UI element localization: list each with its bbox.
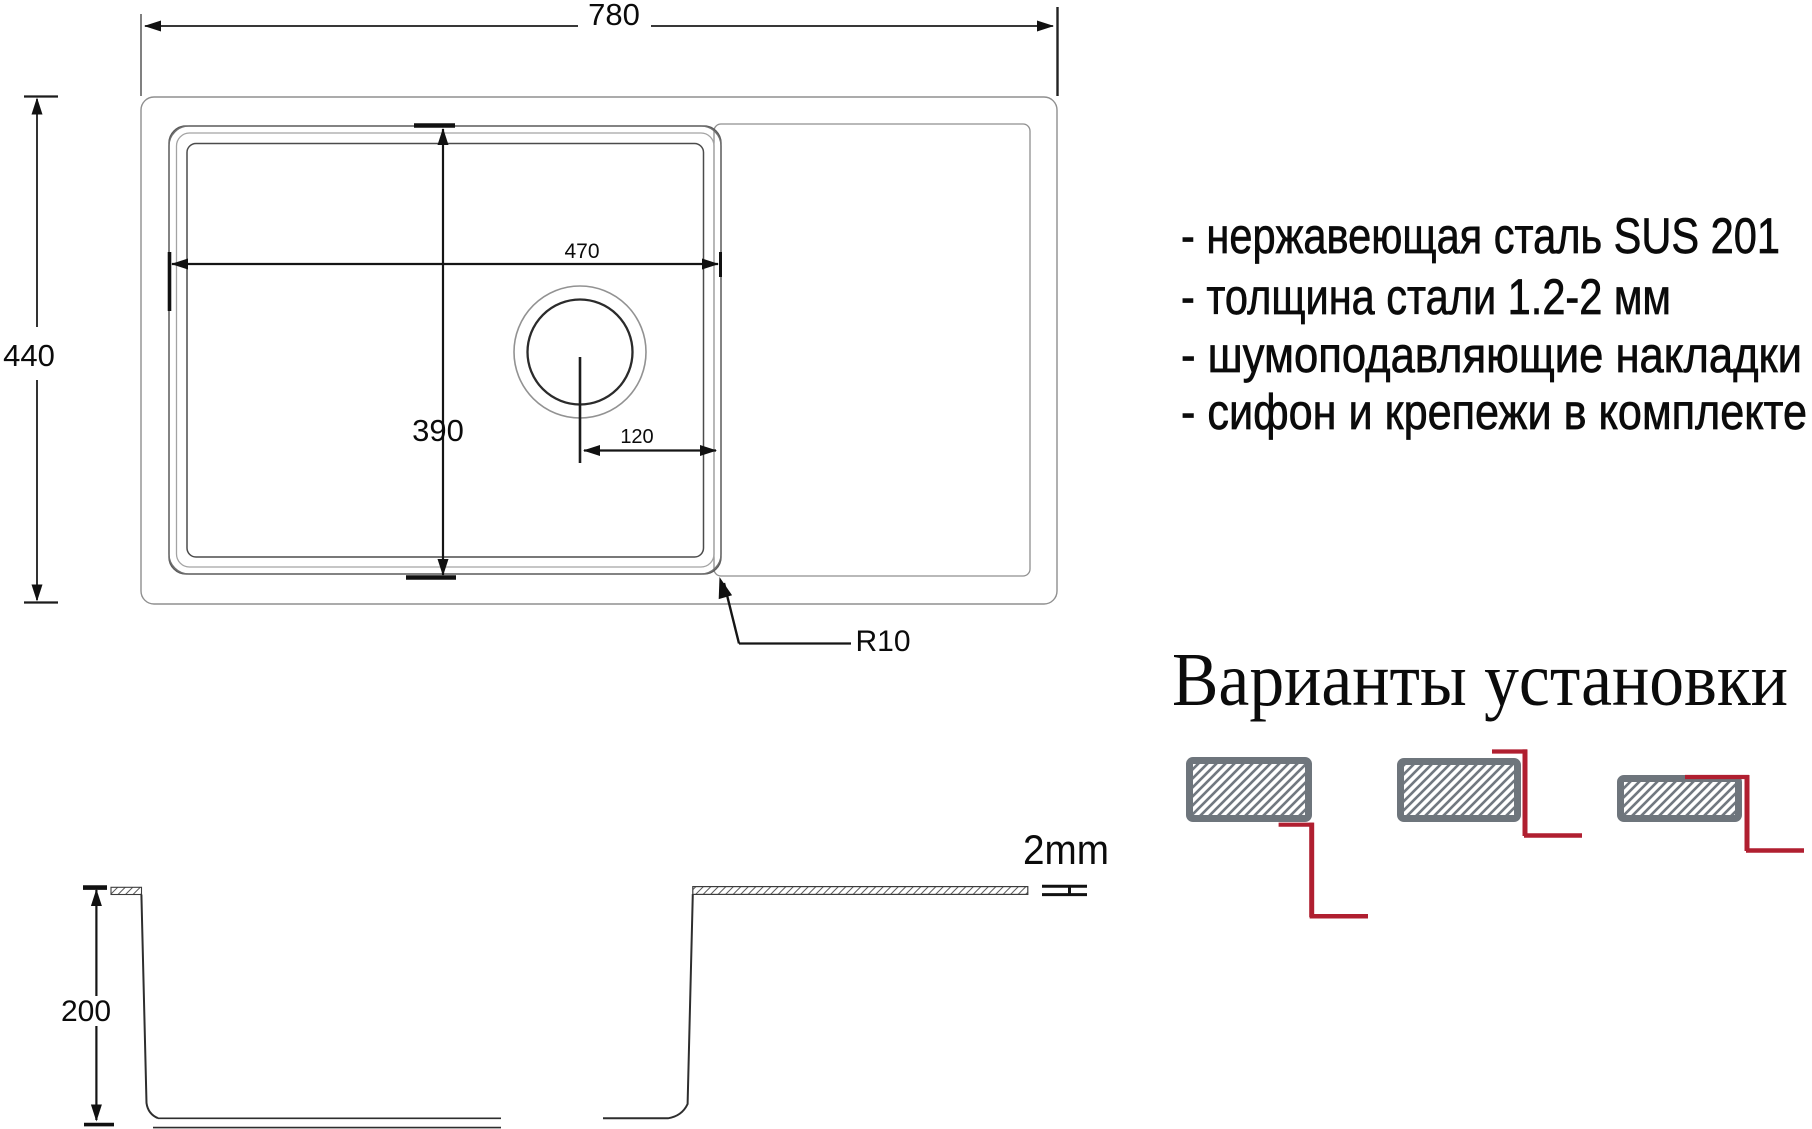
svg-text:R10: R10 [855, 625, 910, 658]
svg-text:120: 120 [620, 426, 653, 448]
svg-text:- сифон и крепежи в комплекте: - сифон и крепежи в комплекте [1181, 384, 1807, 440]
svg-text:- толщина стали 1.2-2 мм: - толщина стали 1.2-2 мм [1181, 269, 1671, 325]
svg-text:2mm: 2mm [1023, 826, 1109, 873]
svg-text:780: 780 [588, 0, 640, 32]
svg-text:- нержавеющая сталь SUS 201: - нержавеющая сталь SUS 201 [1181, 208, 1780, 264]
svg-text:200: 200 [61, 995, 111, 1028]
svg-text:470: 470 [564, 240, 599, 263]
svg-text:390: 390 [412, 413, 464, 448]
svg-text:440: 440 [3, 338, 55, 373]
svg-text:Варианты установки: Варианты установки [1172, 638, 1788, 722]
svg-text:- шумоподавляющие накладки: - шумоподавляющие накладки [1181, 327, 1802, 383]
